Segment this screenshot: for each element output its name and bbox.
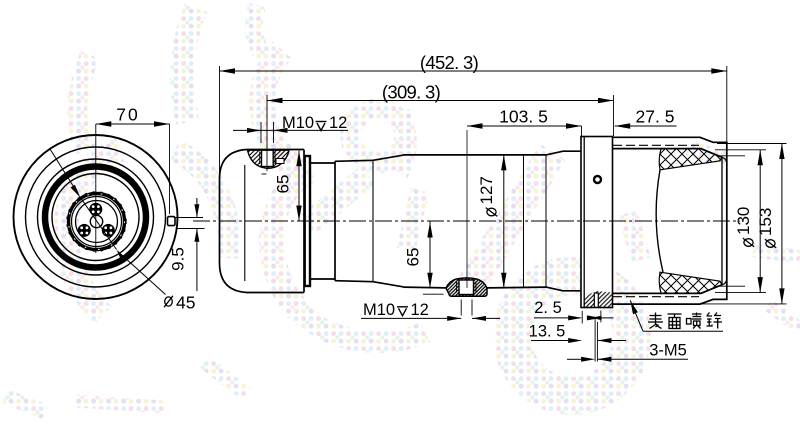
svg-text:13. 5: 13. 5 — [529, 322, 566, 340]
svg-text:M10: M10 — [282, 114, 314, 132]
svg-text:127: 127 — [477, 176, 496, 204]
svg-text:65: 65 — [404, 248, 423, 267]
svg-text:12: 12 — [329, 114, 347, 132]
svg-text:2. 5: 2. 5 — [534, 299, 562, 317]
svg-text:103. 5: 103. 5 — [499, 107, 548, 127]
svg-text:130: 130 — [734, 207, 753, 235]
svg-text:27. 5: 27. 5 — [636, 107, 675, 127]
svg-text:70: 70 — [116, 105, 139, 125]
svg-text:45: 45 — [176, 293, 195, 313]
svg-text:9.5: 9.5 — [169, 247, 188, 271]
svg-text:153: 153 — [756, 208, 775, 236]
svg-text:(452. 3): (452. 3) — [420, 52, 479, 73]
svg-text:3-M5: 3-M5 — [649, 342, 687, 360]
svg-text:(309. 3): (309. 3) — [382, 82, 441, 103]
svg-text:12: 12 — [411, 301, 429, 319]
svg-text:65: 65 — [274, 175, 293, 194]
svg-text:M10: M10 — [363, 301, 395, 319]
